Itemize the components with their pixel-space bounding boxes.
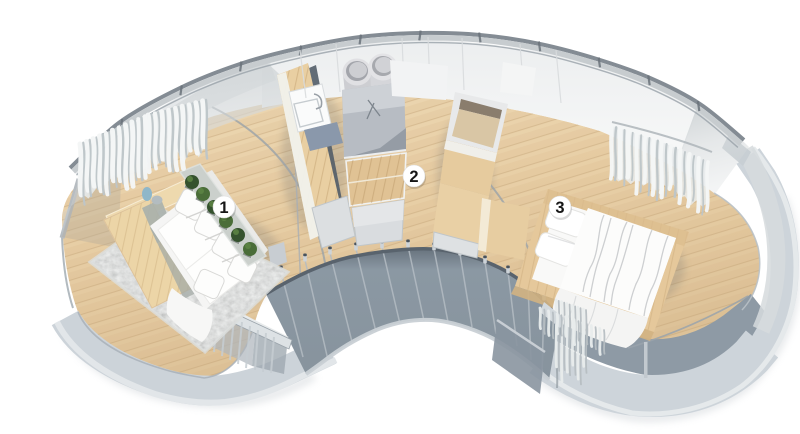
svg-text:2: 2 <box>409 168 418 186</box>
svg-text:3: 3 <box>555 199 564 217</box>
svg-text:1: 1 <box>219 199 228 217</box>
